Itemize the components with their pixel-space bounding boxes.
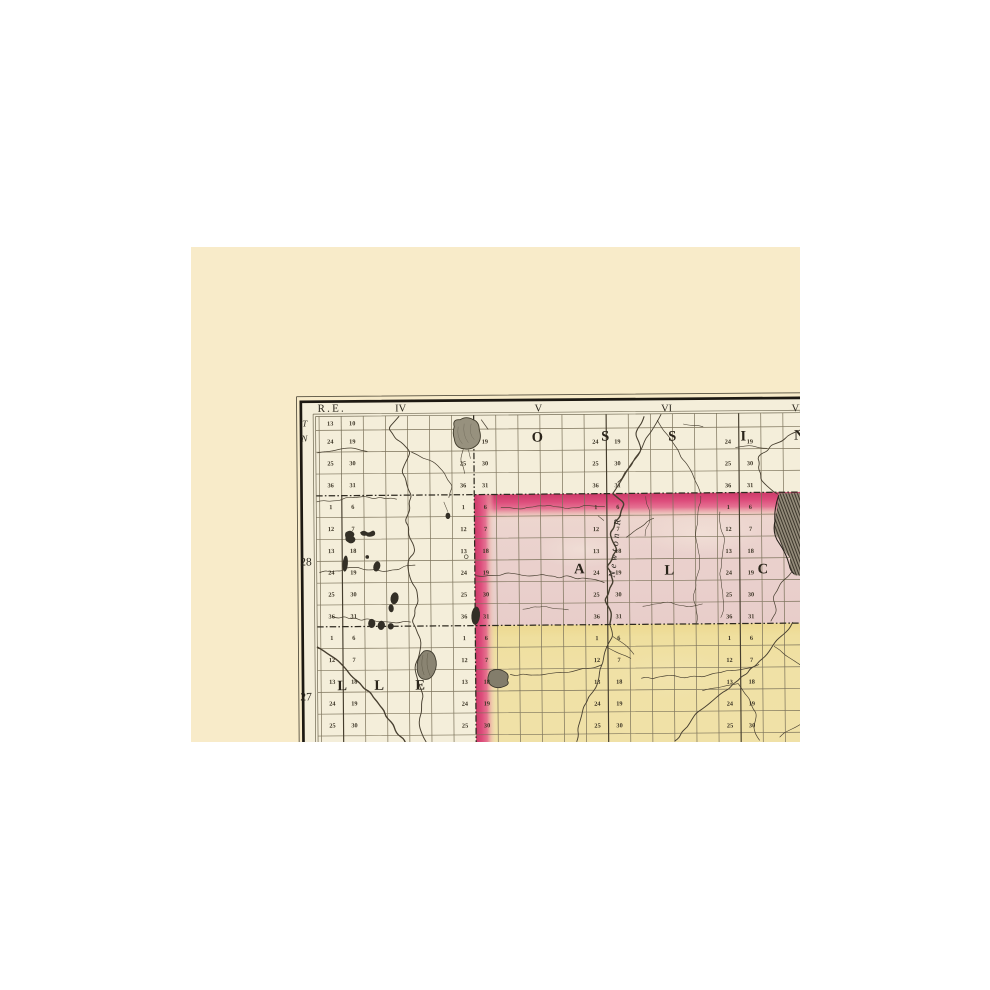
svg-text:19: 19 — [748, 569, 754, 576]
svg-text:N: N — [794, 428, 800, 444]
svg-text:7: 7 — [750, 657, 753, 664]
svg-text:18: 18 — [351, 679, 357, 686]
svg-text:I: I — [740, 428, 746, 444]
svg-text:7: 7 — [352, 657, 355, 664]
svg-text:12: 12 — [725, 526, 731, 533]
svg-text:N: N — [300, 433, 308, 443]
svg-text:12: 12 — [329, 657, 335, 664]
svg-text:1: 1 — [463, 635, 466, 642]
svg-text:31: 31 — [747, 482, 753, 489]
svg-text:25: 25 — [727, 723, 733, 730]
svg-text:30: 30 — [349, 460, 355, 467]
svg-text:6: 6 — [485, 635, 488, 642]
svg-text:6: 6 — [352, 635, 355, 642]
svg-text:25: 25 — [461, 592, 467, 599]
svg-text:31: 31 — [615, 482, 621, 489]
svg-text:19: 19 — [350, 569, 356, 576]
svg-text:10: 10 — [349, 420, 355, 427]
svg-text:24: 24 — [727, 701, 734, 708]
svg-text:25: 25 — [592, 460, 598, 467]
svg-text:30: 30 — [483, 591, 489, 598]
svg-text:30: 30 — [749, 722, 755, 729]
svg-text:19: 19 — [749, 700, 755, 707]
svg-text:13: 13 — [327, 421, 333, 428]
svg-text:12: 12 — [594, 657, 600, 664]
svg-text:12: 12 — [461, 657, 467, 664]
svg-text:24: 24 — [328, 570, 335, 577]
svg-text:36: 36 — [329, 613, 335, 620]
svg-text:O: O — [532, 430, 543, 446]
svg-text:19: 19 — [616, 700, 622, 707]
svg-text:31: 31 — [483, 613, 489, 620]
svg-text:24: 24 — [726, 570, 733, 577]
svg-text:24: 24 — [594, 701, 601, 708]
svg-text:28: 28 — [300, 556, 312, 568]
svg-text:1: 1 — [462, 504, 465, 511]
svg-text:6: 6 — [484, 504, 487, 511]
svg-text:25: 25 — [329, 723, 335, 730]
svg-text:24: 24 — [462, 701, 469, 708]
svg-text:1: 1 — [594, 504, 597, 511]
svg-text:1: 1 — [329, 504, 332, 511]
svg-text:7: 7 — [484, 526, 487, 533]
svg-text:13: 13 — [329, 679, 335, 686]
svg-text:6: 6 — [617, 635, 620, 642]
svg-text:18: 18 — [484, 679, 490, 686]
svg-text:R.E.: R.E. — [318, 403, 346, 415]
svg-text:24: 24 — [725, 439, 732, 446]
svg-text:12: 12 — [460, 526, 466, 533]
svg-text:13: 13 — [727, 679, 733, 686]
svg-text:30: 30 — [351, 722, 357, 729]
svg-text:18: 18 — [350, 548, 356, 555]
svg-text:18: 18 — [748, 548, 754, 555]
svg-text:19: 19 — [614, 438, 620, 445]
svg-text:1: 1 — [728, 635, 731, 642]
svg-text:27: 27 — [300, 691, 312, 703]
svg-text:13: 13 — [461, 548, 467, 555]
svg-text:25: 25 — [725, 460, 731, 467]
svg-text:19: 19 — [484, 701, 490, 708]
svg-text:24: 24 — [327, 439, 334, 446]
svg-text:12: 12 — [726, 657, 732, 664]
svg-text:31: 31 — [349, 482, 355, 489]
svg-text:7: 7 — [351, 526, 354, 533]
svg-text:30: 30 — [748, 591, 754, 598]
svg-text:25: 25 — [462, 723, 468, 730]
svg-text:36: 36 — [460, 482, 466, 489]
svg-text:25: 25 — [327, 460, 333, 467]
svg-text:C: C — [758, 561, 769, 577]
svg-text:S: S — [601, 429, 609, 445]
svg-text:30: 30 — [747, 460, 753, 467]
svg-text:19: 19 — [747, 438, 753, 445]
svg-text:36: 36 — [725, 482, 731, 489]
svg-text:25: 25 — [593, 592, 599, 599]
svg-text:13: 13 — [726, 548, 732, 555]
svg-text:1: 1 — [727, 504, 730, 511]
svg-text:24: 24 — [592, 439, 599, 446]
svg-text:19: 19 — [351, 700, 357, 707]
svg-text:VI: VI — [661, 403, 673, 414]
svg-text:7: 7 — [617, 657, 620, 664]
svg-text:VII: VII — [792, 403, 800, 414]
svg-text:36: 36 — [461, 613, 467, 620]
svg-text:A: A — [574, 561, 585, 577]
svg-text:13: 13 — [594, 679, 600, 686]
svg-text:30: 30 — [614, 460, 620, 467]
svg-text:36: 36 — [327, 482, 333, 489]
svg-text:L: L — [664, 563, 674, 579]
svg-text:S: S — [668, 429, 676, 445]
svg-text:31: 31 — [616, 613, 622, 620]
svg-text:6: 6 — [749, 504, 752, 511]
svg-text:7: 7 — [749, 526, 752, 533]
svg-text:V: V — [535, 403, 543, 414]
svg-text:30: 30 — [484, 722, 490, 729]
svg-text:13: 13 — [593, 548, 599, 555]
svg-text:12: 12 — [328, 526, 334, 533]
svg-text:30: 30 — [616, 722, 622, 729]
svg-text:31: 31 — [351, 613, 357, 620]
svg-text:1: 1 — [330, 635, 333, 642]
svg-text:36: 36 — [593, 482, 599, 489]
svg-text:25: 25 — [594, 723, 600, 730]
svg-text:30: 30 — [615, 591, 621, 598]
svg-text:13: 13 — [462, 679, 468, 686]
svg-text:L: L — [374, 678, 384, 694]
svg-text:13: 13 — [328, 548, 334, 555]
svg-text:7: 7 — [485, 657, 488, 664]
svg-text:18: 18 — [616, 679, 622, 686]
svg-text:36: 36 — [594, 613, 600, 620]
svg-text:1: 1 — [595, 635, 598, 642]
svg-text:12: 12 — [593, 526, 599, 533]
svg-text:19: 19 — [482, 439, 488, 446]
svg-text:6: 6 — [750, 635, 753, 642]
svg-text:24: 24 — [461, 570, 468, 577]
svg-text:25: 25 — [726, 592, 732, 599]
svg-text:IV: IV — [395, 403, 407, 414]
svg-text:30: 30 — [482, 460, 488, 467]
svg-text:18: 18 — [483, 548, 489, 555]
svg-text:24: 24 — [329, 701, 336, 708]
svg-text:24: 24 — [593, 570, 600, 577]
svg-text:19: 19 — [349, 438, 355, 445]
svg-text:36: 36 — [726, 613, 732, 620]
svg-text:31: 31 — [482, 482, 488, 489]
svg-text:25: 25 — [460, 460, 466, 467]
svg-text:L: L — [337, 678, 347, 694]
svg-text:31: 31 — [748, 613, 754, 620]
svg-text:19: 19 — [483, 570, 489, 577]
svg-text:18: 18 — [749, 679, 755, 686]
svg-text:25: 25 — [328, 592, 334, 599]
svg-text:6: 6 — [351, 504, 354, 511]
svg-text:E: E — [415, 678, 425, 694]
svg-text:6: 6 — [616, 504, 619, 511]
svg-text:30: 30 — [350, 591, 356, 598]
